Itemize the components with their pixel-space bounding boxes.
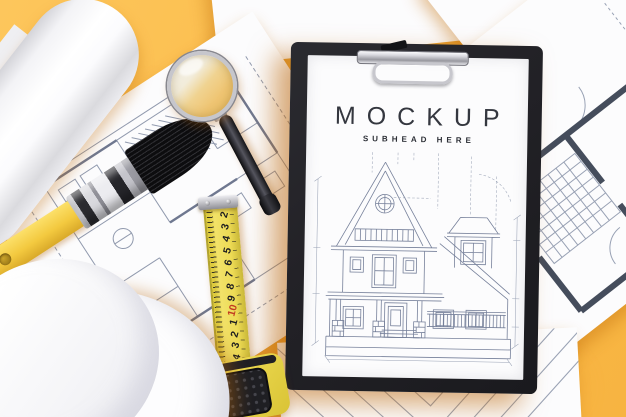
tape-number: 8 — [225, 282, 237, 290]
brush-handle-hole — [0, 251, 14, 268]
flatlay-scene: MOCKUP SUBHEAD HERE — [0, 0, 626, 417]
tape-number: 5 — [222, 246, 234, 254]
tape-number: 6 — [223, 258, 235, 266]
clipboard-paper: MOCKUP SUBHEAD HERE — [302, 55, 529, 380]
tape-number: 3 — [220, 223, 232, 231]
house-blueprint-drawing — [302, 143, 527, 375]
tape-number: 2 — [218, 211, 230, 219]
clip-loop — [372, 61, 452, 84]
clipboard-clip — [356, 45, 469, 89]
tape-number: 4 — [221, 235, 233, 243]
tape-measure-hook — [198, 195, 239, 211]
tape-number: 1 — [228, 318, 240, 326]
magnifier-lens — [167, 51, 237, 121]
tape-number-highlight: 10 — [226, 303, 239, 317]
clipboard: MOCKUP SUBHEAD HERE — [285, 42, 543, 394]
tape-number: 3 — [230, 342, 242, 350]
tape-number: 7 — [224, 270, 236, 278]
tape-number: 2 — [229, 330, 241, 338]
mockup-title: MOCKUP — [307, 101, 528, 134]
tape-number: 9 — [226, 294, 238, 302]
